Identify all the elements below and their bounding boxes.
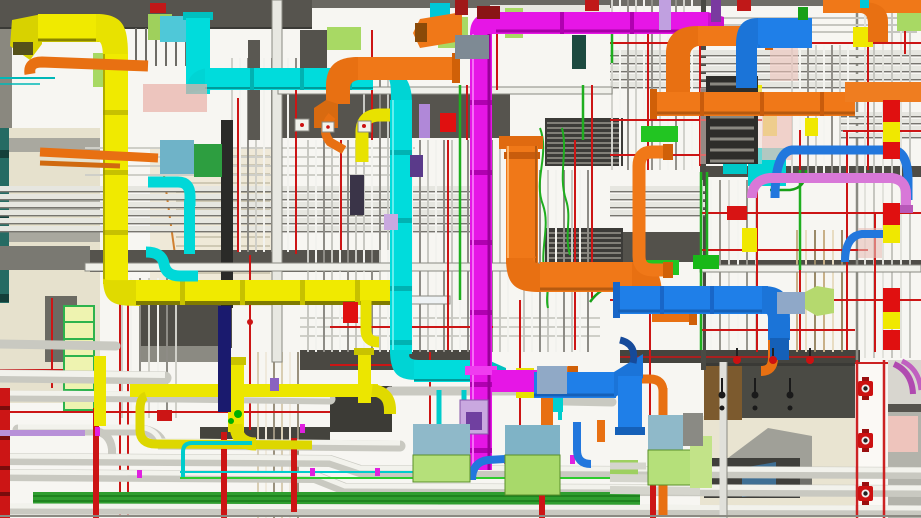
box-green-top	[798, 7, 808, 20]
far-right-band	[888, 404, 921, 412]
box-red	[455, 0, 468, 15]
soffit	[610, 232, 705, 262]
dark-zone-br	[742, 366, 858, 418]
box-red	[157, 410, 172, 421]
box-purple	[410, 155, 423, 177]
fitting-yellow	[805, 118, 818, 136]
pipe-main-hi	[0, 373, 165, 375]
duct-joint	[300, 68, 304, 90]
device-node	[753, 406, 758, 411]
sprinkler-head	[769, 356, 777, 364]
box-red	[585, 0, 599, 11]
fitting-cyan	[160, 16, 187, 42]
alarm-device-core	[863, 386, 867, 390]
fcu-body	[413, 455, 470, 482]
box-red	[440, 113, 456, 132]
duct-blue-cap	[615, 427, 645, 435]
pipe-yellow-riser	[94, 356, 106, 426]
valve-red	[247, 319, 253, 325]
fitting-green-box	[194, 144, 222, 177]
valve-green	[234, 410, 242, 418]
box-darkgreen	[572, 35, 586, 69]
beam	[700, 265, 921, 272]
fitting-green	[327, 27, 361, 50]
pipe-orange-cap	[663, 144, 673, 160]
device-node	[720, 406, 725, 411]
fitting-green-flare	[805, 286, 834, 316]
fcu-body	[505, 455, 560, 495]
duct-joint	[250, 68, 254, 90]
device-node	[752, 392, 759, 399]
duct-orange-c	[355, 57, 455, 80]
duct-orange-flare-dark	[415, 23, 427, 42]
duct-yellow	[38, 14, 100, 42]
vav-box-red	[883, 330, 900, 350]
box-steelblue	[777, 292, 805, 314]
duct-orange-riser	[506, 146, 538, 264]
pipe-orange-cap	[663, 262, 673, 278]
alarm-device-core	[863, 491, 867, 495]
duct-lilac-top	[659, 0, 671, 30]
duct-orange-cap	[650, 89, 657, 119]
bim-viewport[interactable]	[0, 0, 921, 518]
fcu-top	[505, 425, 560, 455]
vav-box-red	[883, 100, 900, 122]
pipe-yellow-cap	[354, 348, 374, 355]
duct-joint	[300, 280, 305, 305]
ledge-bl	[140, 346, 226, 362]
duct-collar	[504, 152, 540, 159]
vav-box-red	[883, 203, 900, 225]
shaft-mark	[0, 150, 9, 158]
salmon-box	[143, 84, 207, 112]
duct-navy	[218, 306, 231, 412]
box-darkred	[477, 6, 500, 19]
box-red	[150, 3, 166, 13]
pipe-yellow-branch	[358, 353, 371, 403]
valve-green	[228, 418, 234, 424]
alarm-device-bar	[862, 448, 869, 452]
duct-blue-flange	[613, 282, 620, 318]
duct-joint	[355, 280, 360, 305]
shaft-mark	[0, 294, 9, 302]
pipe-orange	[40, 152, 158, 158]
duct-stub-green	[693, 255, 719, 269]
vav-box-yellow	[883, 225, 900, 243]
duct-joint	[180, 280, 185, 305]
fitting-yellow	[742, 228, 757, 252]
alarm-device-bar	[862, 501, 869, 505]
pipe-main-hi	[0, 506, 921, 508]
box-red	[343, 302, 358, 323]
fitting-green	[897, 12, 921, 31]
salmon-box	[888, 416, 918, 452]
duct-blue-elbow-tr	[736, 18, 760, 88]
alarm-device-bar	[862, 429, 869, 433]
box-grayblue	[455, 35, 489, 59]
duct-cyan-stub	[184, 200, 195, 254]
fitting-lightblue	[160, 140, 194, 174]
duct-lavender	[419, 104, 430, 138]
alarm-device-core	[863, 438, 867, 442]
duct-blue-tr	[757, 18, 812, 48]
pipe-tick-magenta	[95, 427, 100, 436]
box-teal-top	[860, 0, 869, 8]
outlet-dot	[326, 125, 330, 129]
duct-joint	[103, 170, 128, 175]
mep-model-canvas[interactable]	[0, 0, 921, 518]
device-node	[788, 406, 793, 411]
box-purple-top	[711, 0, 721, 22]
duct-joint	[660, 286, 664, 314]
device-node	[719, 392, 726, 399]
pipe-tick-magenta	[375, 468, 380, 476]
pipe-main	[0, 344, 116, 346]
outlet-dot	[300, 123, 304, 127]
soffit-light	[0, 246, 90, 270]
pipe-pink-cap	[899, 205, 913, 213]
duct-yellow-inlet-dark	[13, 42, 33, 55]
outlet-dot	[362, 124, 366, 128]
fcu-top	[648, 415, 683, 450]
pipe-tick-magenta	[300, 424, 305, 433]
duct-stub-green	[641, 126, 678, 142]
column-white	[272, 0, 282, 362]
box-red	[727, 206, 747, 220]
device-node	[787, 392, 794, 399]
alarm-device-bar	[862, 482, 869, 486]
duct-joint	[630, 12, 634, 34]
duct-joint	[103, 110, 128, 115]
duct-joint	[760, 92, 764, 116]
tick-purple	[270, 378, 279, 391]
box-steelblue	[537, 366, 567, 394]
pipe-orange-thin	[40, 163, 120, 166]
duct-joint	[560, 12, 564, 34]
column-black	[221, 120, 233, 308]
sprinkler-head	[806, 356, 814, 364]
box-lavender	[384, 214, 398, 230]
duct-joint	[820, 92, 824, 116]
box-slate	[350, 175, 364, 215]
duct-joint	[710, 286, 714, 314]
pipe-yellow-main	[130, 384, 378, 397]
duct-joint	[700, 92, 704, 116]
duct-joint	[103, 230, 128, 235]
box-gray	[683, 413, 703, 446]
fcu-top	[413, 424, 470, 455]
dark-box-tc	[300, 30, 327, 68]
vav-box-red	[883, 142, 900, 159]
pipe-tick-magenta	[310, 468, 315, 476]
pipe-tick-magenta	[137, 470, 142, 478]
duct-blue-drop	[618, 376, 642, 430]
duct-yellow-riser	[103, 54, 128, 284]
salmon-box	[770, 47, 798, 81]
box-red	[737, 0, 751, 11]
duct-orange-ne	[845, 82, 921, 102]
sprinkler-head	[733, 356, 741, 364]
vav-box-yellow	[883, 122, 900, 142]
vav-box-yellow	[883, 312, 900, 329]
duct-joint	[240, 280, 245, 305]
alarm-device-bar	[862, 396, 869, 400]
alarm-device-bar	[862, 377, 869, 381]
vav-box-red	[883, 288, 900, 312]
